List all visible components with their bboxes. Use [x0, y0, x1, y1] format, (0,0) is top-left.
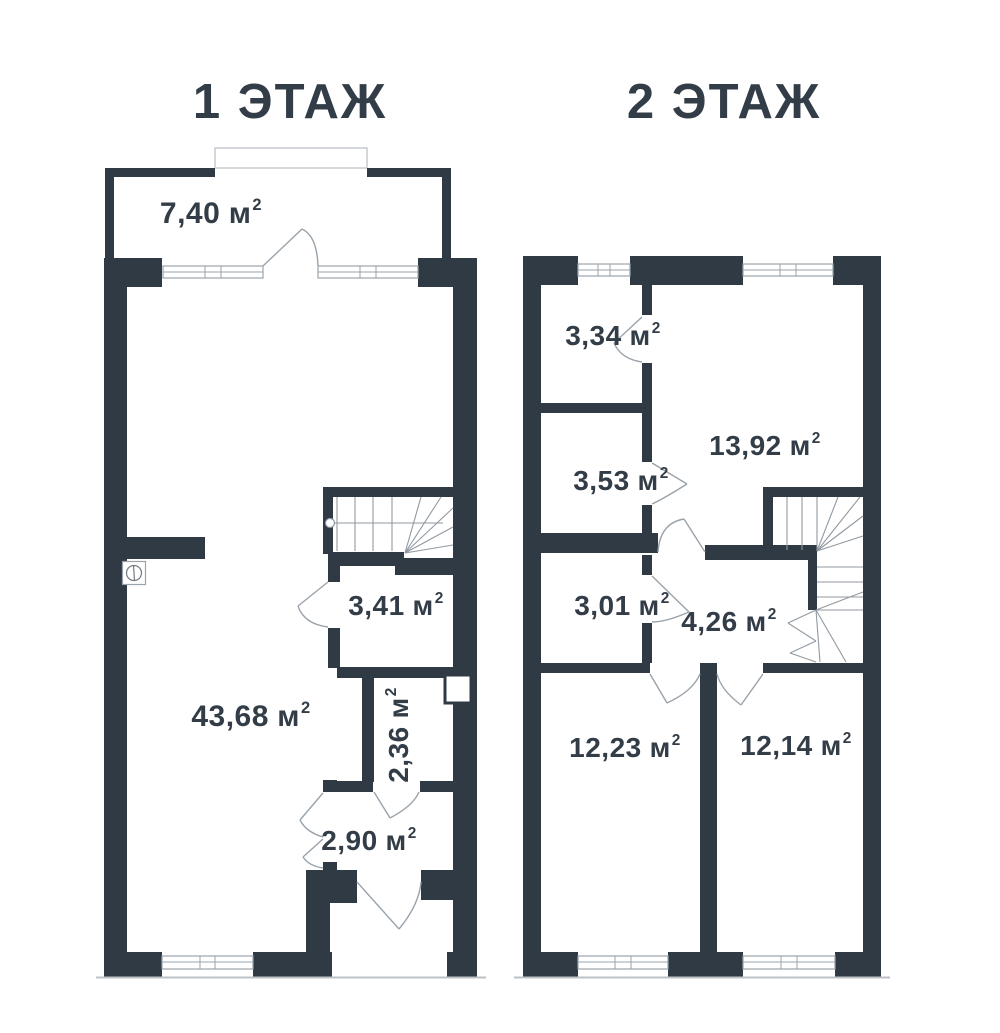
floor2-area-room-1: 3,34м2 — [565, 320, 661, 352]
electric-meter-icon — [123, 562, 146, 585]
floor2-area-room-3: 3,53м2 — [573, 465, 669, 497]
floorplan-canvas: 1 ЭТАЖ 2 ЭТАЖ 7,40м2 43,68м2 3,41м2 2,36… — [0, 0, 1000, 1033]
floor2-stairs — [787, 497, 863, 662]
floor1-stairs — [326, 497, 454, 553]
duct-niche — [445, 675, 471, 703]
floor2-doors — [614, 317, 763, 705]
floor2-area-room-5: 12,23м2 — [569, 732, 681, 764]
floorplan-svg — [0, 0, 1000, 1033]
balcony-window-bay — [215, 148, 367, 168]
floor2-title: 2 ЭТАЖ — [627, 74, 821, 130]
floor1-balcony — [105, 148, 451, 260]
floor1-area-balcony: 7,40м2 — [160, 197, 262, 231]
floor1-area-hall: 2,90м2 — [321, 825, 417, 857]
floor1-title: 1 ЭТАЖ — [193, 74, 387, 130]
floor2-area-hall: 4,26м2 — [681, 606, 777, 638]
floor2-area-room-6: 12,14м2 — [740, 730, 852, 762]
floor1-area-corridor: 2,36м2 — [383, 687, 415, 783]
floor1-area-living: 43,68м2 — [191, 700, 310, 734]
floor1-doors — [263, 229, 421, 929]
floor2-area-room-4: 3,01м2 — [574, 590, 670, 622]
stair-newel — [326, 519, 335, 528]
floor2-area-room-2: 13,92м2 — [709, 430, 821, 462]
floor1-plan — [96, 148, 486, 978]
floor1-area-understair-room: 3,41м2 — [348, 590, 444, 622]
